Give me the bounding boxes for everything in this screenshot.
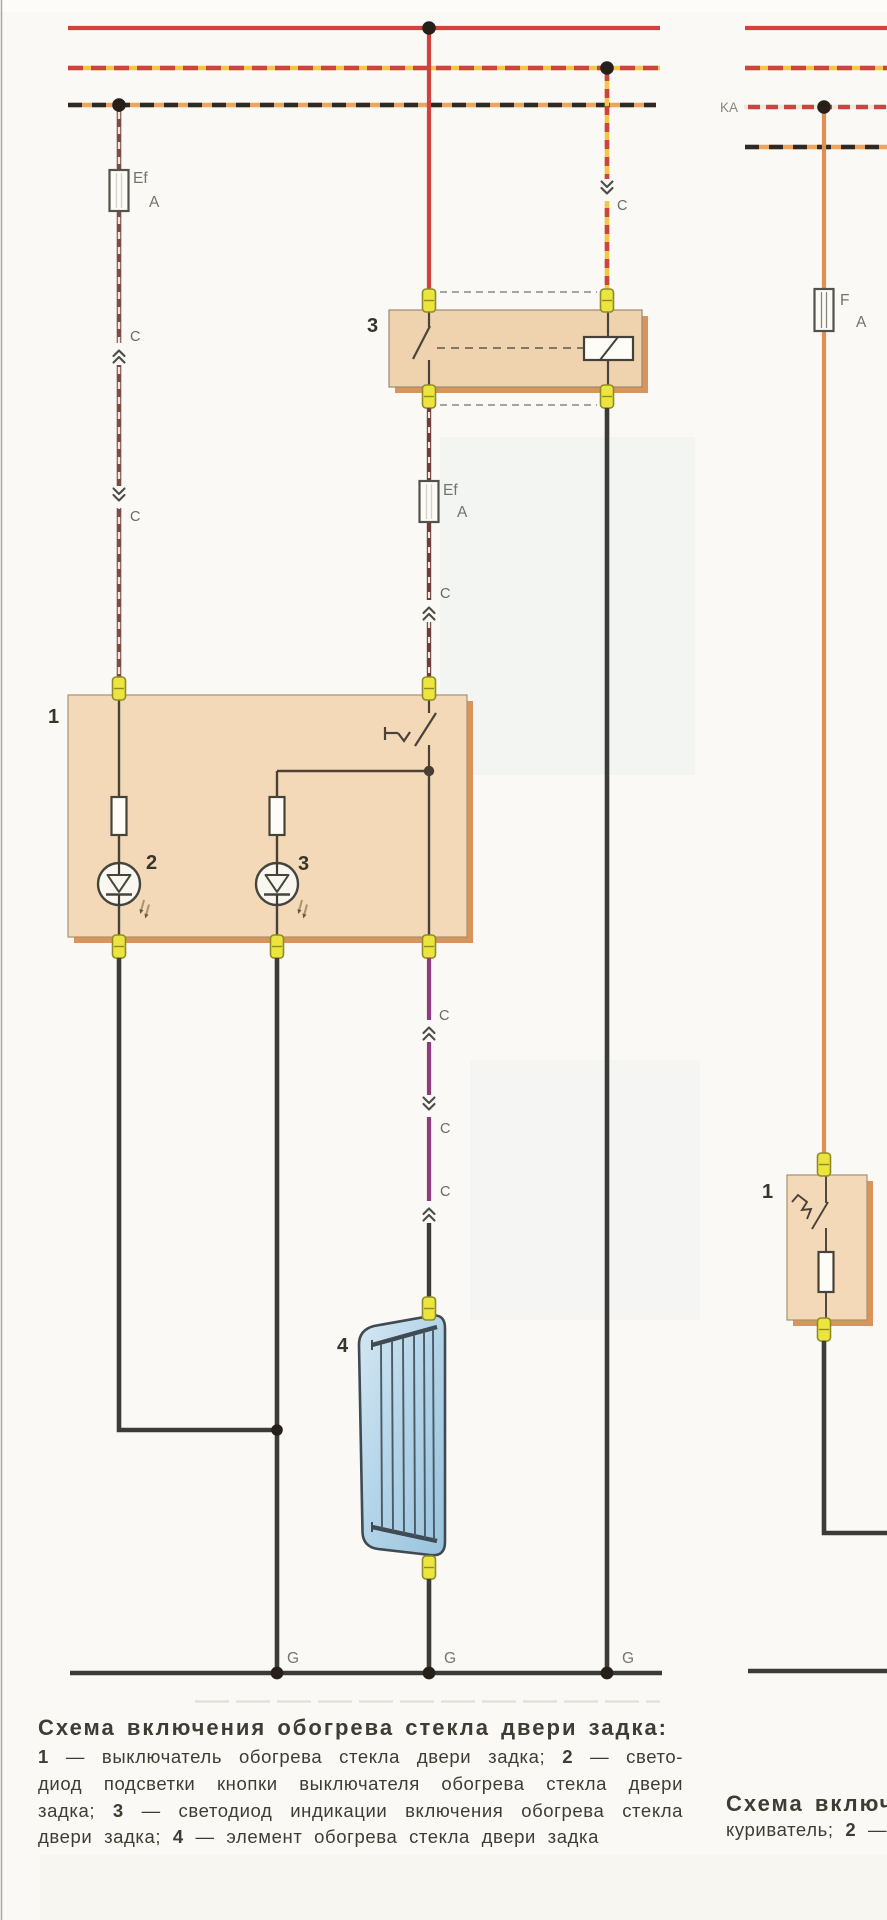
svg-text:A: A bbox=[856, 314, 867, 331]
svg-text:Ef: Ef bbox=[443, 482, 458, 499]
svg-text:C: C bbox=[440, 586, 450, 602]
svg-text:A: A bbox=[149, 194, 160, 211]
svg-text:4: 4 bbox=[337, 1335, 349, 1357]
svg-text:A: A bbox=[457, 504, 468, 521]
svg-text:G: G bbox=[622, 1650, 634, 1667]
svg-text:F: F bbox=[840, 292, 849, 309]
svg-text:1: 1 bbox=[762, 1181, 773, 1203]
svg-text:G: G bbox=[287, 1650, 299, 1667]
svg-text:Ef: Ef bbox=[133, 170, 148, 187]
svg-text:C: C bbox=[440, 1121, 450, 1137]
svg-text:KA: KA bbox=[720, 100, 738, 115]
svg-text:3: 3 bbox=[298, 853, 309, 875]
svg-text:3: 3 bbox=[367, 315, 378, 337]
svg-text:1: 1 bbox=[48, 706, 59, 728]
svg-text:C: C bbox=[439, 1008, 449, 1024]
svg-text:C: C bbox=[130, 509, 140, 525]
svg-text:G: G bbox=[444, 1650, 456, 1667]
svg-text:C: C bbox=[440, 1184, 450, 1200]
svg-text:C: C bbox=[130, 329, 140, 345]
svg-text:C: C bbox=[617, 198, 627, 214]
svg-text:2: 2 bbox=[146, 852, 157, 874]
